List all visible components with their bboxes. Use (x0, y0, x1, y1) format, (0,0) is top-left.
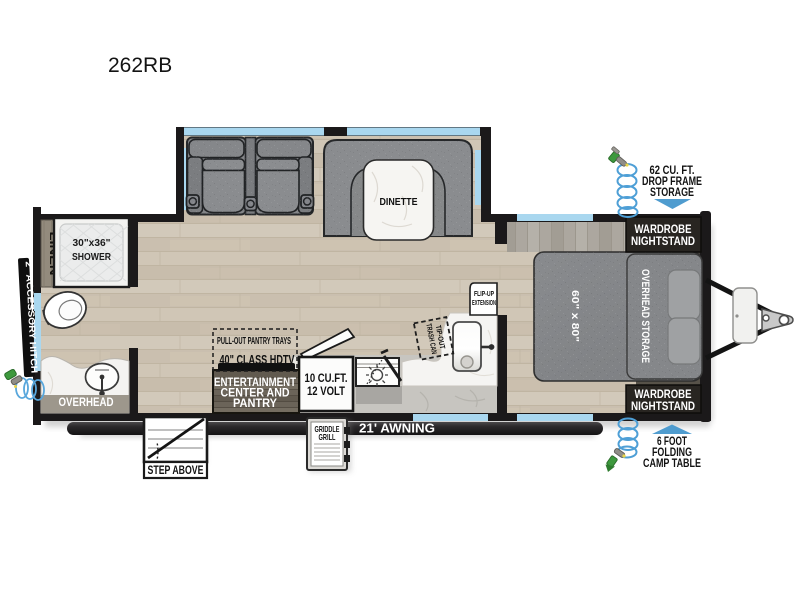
svg-text:STEP ABOVE: STEP ABOVE (148, 465, 204, 477)
svg-text:STORAGE: STORAGE (650, 187, 694, 199)
svg-text:GRILL: GRILL (319, 432, 336, 442)
svg-text:10 CU.FT.: 10 CU.FT. (305, 371, 348, 385)
svg-text:EXTENSION: EXTENSION (472, 298, 496, 307)
svg-text:30"x36": 30"x36" (73, 237, 111, 249)
svg-text:262RB: 262RB (108, 54, 172, 77)
svg-text:OVERHEAD: OVERHEAD (59, 395, 114, 409)
svg-text:FLIP-UP: FLIP-UP (474, 289, 494, 298)
svg-text:PANTRY: PANTRY (233, 396, 277, 410)
svg-text:NIGHTSTAND: NIGHTSTAND (631, 401, 695, 413)
svg-text:21' AWNING: 21' AWNING (359, 422, 435, 436)
svg-text:40" CLASS HDTV: 40" CLASS HDTV (220, 352, 295, 367)
svg-text:NIGHTSTAND: NIGHTSTAND (631, 236, 695, 248)
svg-text:PULL-OUT PANTRY TRAYS: PULL-OUT PANTRY TRAYS (217, 335, 291, 347)
svg-text:12 VOLT: 12 VOLT (307, 384, 346, 398)
svg-text:WARDROBE: WARDROBE (635, 224, 692, 236)
svg-text:WARDROBE: WARDROBE (635, 389, 692, 401)
svg-text:SHOWER: SHOWER (72, 251, 111, 263)
svg-text:DINETTE: DINETTE (380, 197, 418, 208)
svg-text:CAMP TABLE: CAMP TABLE (643, 458, 701, 470)
